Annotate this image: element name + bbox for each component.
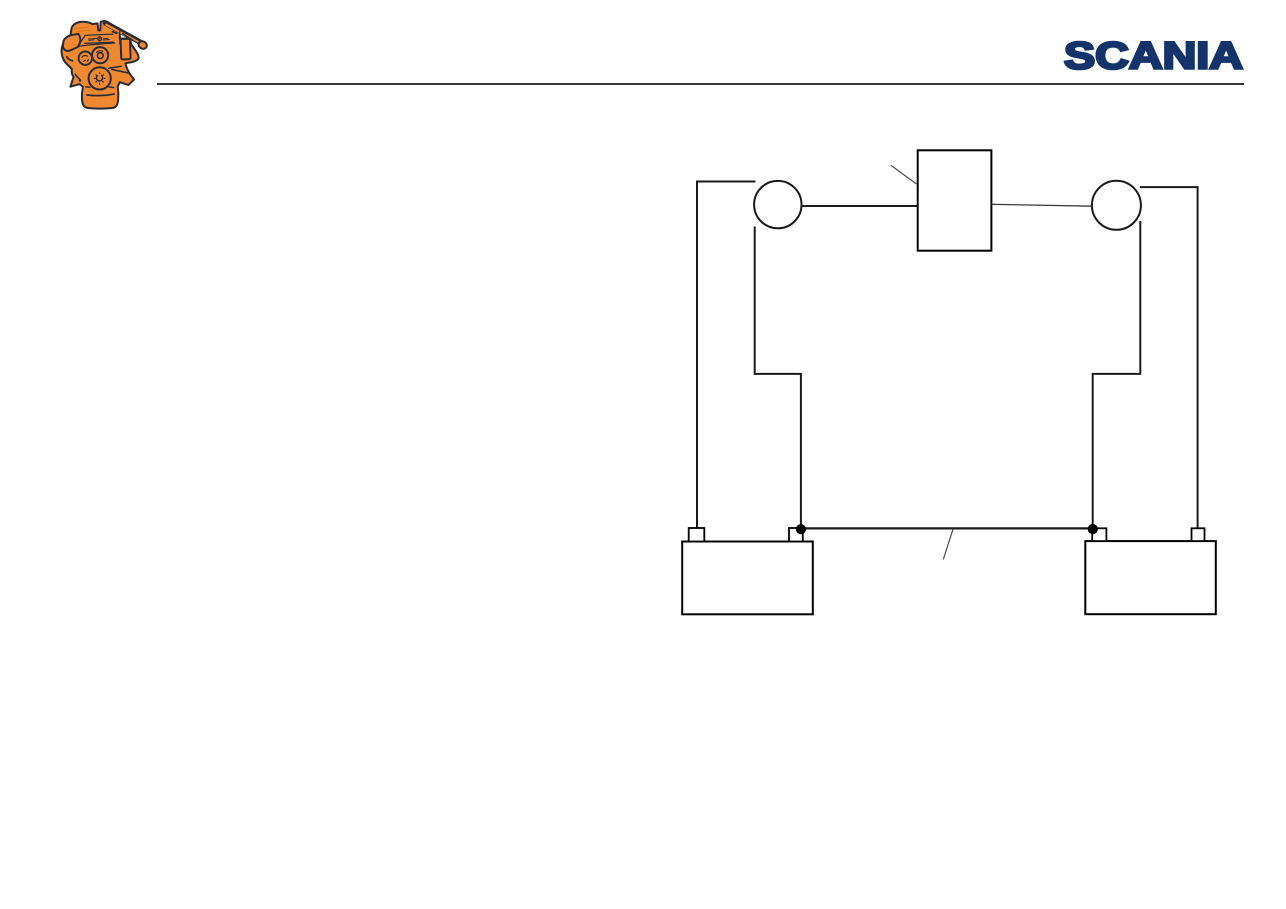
- svg-text:SCANIA: SCANIA: [1064, 36, 1243, 78]
